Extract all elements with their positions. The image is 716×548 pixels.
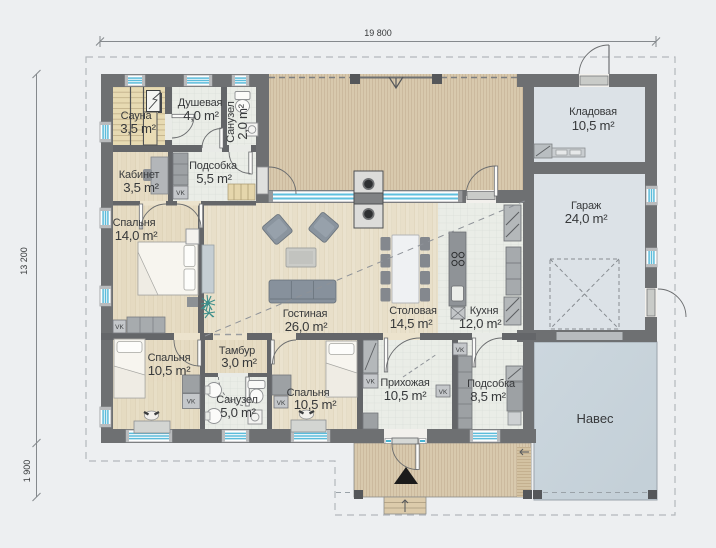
svg-text:1 900: 1 900 (22, 460, 32, 483)
svg-text:5,5 m²: 5,5 m² (196, 171, 232, 186)
svg-text:2,0 m²: 2,0 m² (235, 103, 250, 139)
svg-text:10,5 m²: 10,5 m² (384, 388, 428, 403)
svg-text:13 200: 13 200 (19, 247, 29, 275)
svg-text:VK: VK (187, 399, 196, 406)
svg-text:14,5 m²: 14,5 m² (390, 316, 434, 331)
svg-text:3,5 m²: 3,5 m² (120, 121, 156, 136)
svg-text:3,5 m²: 3,5 m² (123, 180, 159, 195)
svg-text:VK: VK (439, 389, 448, 396)
svg-text:VK: VK (277, 400, 286, 407)
svg-text:3,0 m²: 3,0 m² (221, 355, 257, 370)
svg-text:10,5 m²: 10,5 m² (294, 397, 338, 412)
svg-text:26,0 m²: 26,0 m² (285, 319, 329, 334)
svg-text:VK: VK (456, 347, 465, 354)
svg-text:VK: VK (366, 379, 375, 386)
svg-text:12,0 m²: 12,0 m² (459, 316, 503, 331)
svg-text:5,0 m²: 5,0 m² (220, 405, 256, 420)
svg-text:VK: VK (115, 324, 124, 331)
svg-text:VK: VK (176, 190, 185, 197)
svg-text:24,0 m²: 24,0 m² (565, 211, 609, 226)
svg-text:14,0 m²: 14,0 m² (115, 228, 159, 243)
svg-text:10,5 m²: 10,5 m² (148, 363, 192, 378)
svg-text:10,5 m²: 10,5 m² (572, 118, 616, 133)
svg-text:4,0 m²: 4,0 m² (183, 108, 219, 123)
svg-text:8,5 m²: 8,5 m² (470, 389, 506, 404)
svg-text:Навес: Навес (576, 411, 614, 426)
svg-text:Кладовая: Кладовая (569, 106, 617, 118)
svg-text:19 800: 19 800 (364, 28, 392, 38)
